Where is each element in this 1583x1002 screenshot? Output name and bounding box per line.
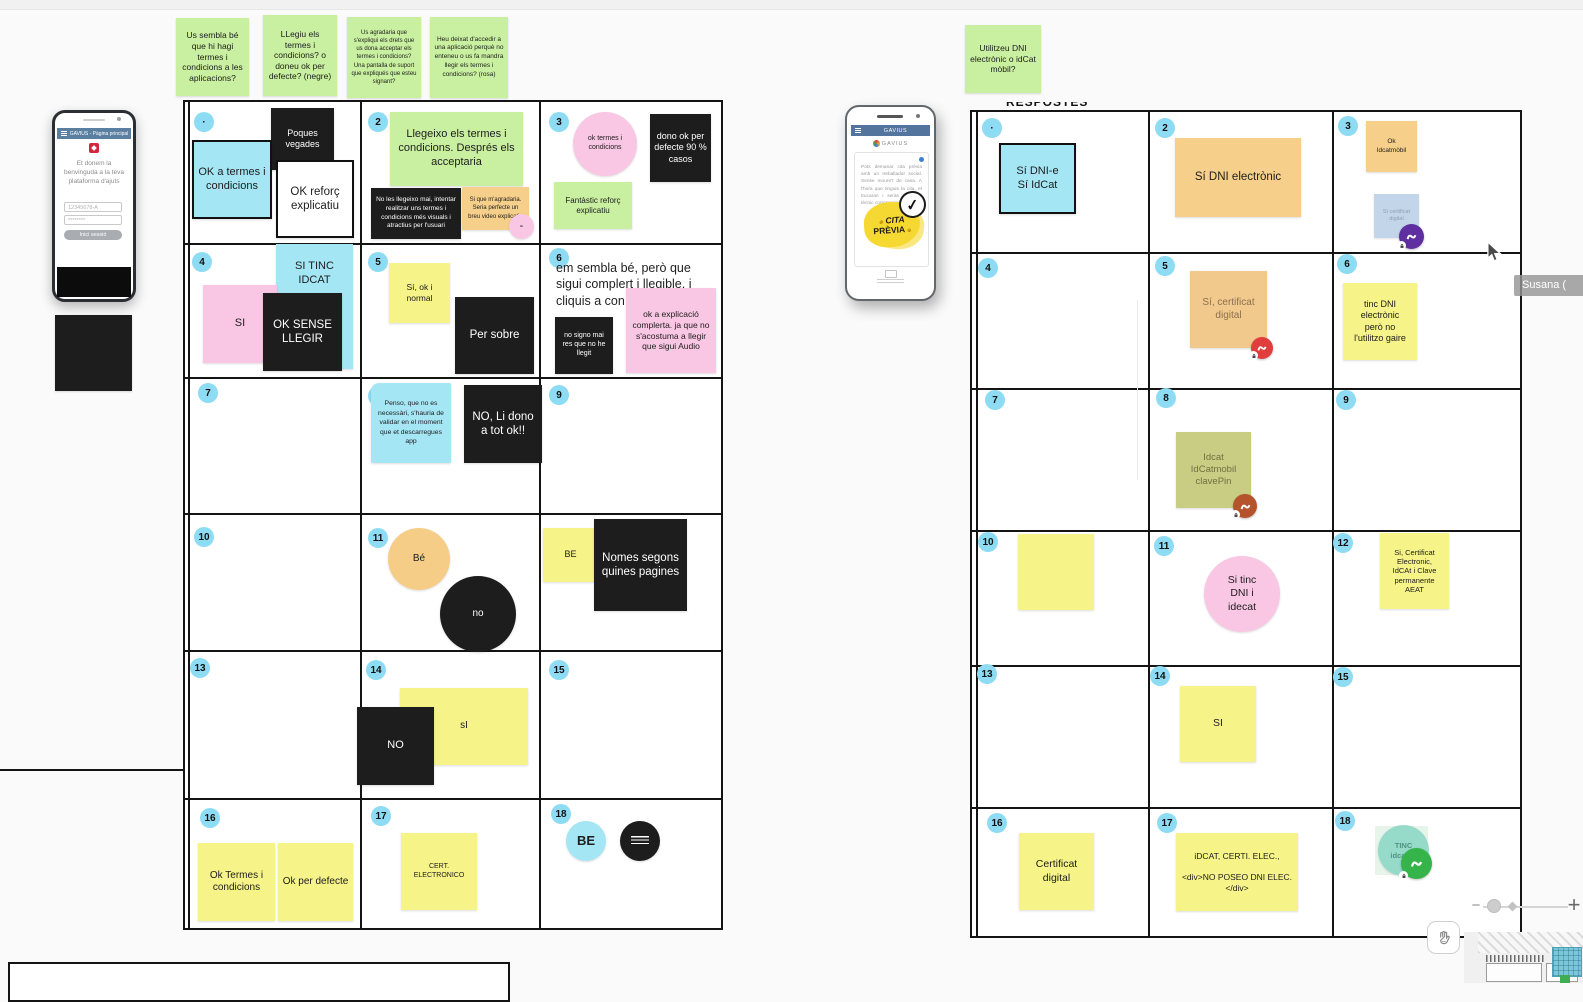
sticky-dot[interactable]: - xyxy=(509,214,534,239)
cell-badge-10[interactable]: 10 xyxy=(194,527,214,547)
avatar-doodle-icon xyxy=(1256,342,1268,354)
gavius-brand: GAVIUS xyxy=(847,140,934,147)
grid-row-line xyxy=(972,665,1520,667)
cell-badge-18[interactable]: 18 xyxy=(551,804,571,824)
minimap-frame-a xyxy=(1486,963,1542,982)
avatar-doodle-icon xyxy=(1409,856,1424,871)
minimap-dash-row xyxy=(1486,955,1544,962)
phone-bottom-band xyxy=(57,267,131,297)
hand-tool-button[interactable] xyxy=(1427,921,1460,954)
sticky-note[interactable]: SI xyxy=(1180,686,1256,762)
grid-row-line xyxy=(185,377,721,379)
sticky-circle[interactable]: BE xyxy=(566,821,606,861)
sticky-note[interactable]: OK reforç explicatiu xyxy=(276,160,354,238)
phone-speaker xyxy=(83,119,105,121)
grid-row-line xyxy=(972,388,1520,390)
sticky-circle[interactable]: no xyxy=(440,576,516,652)
canvas-top-edge xyxy=(0,0,1583,10)
sticky-note[interactable]: Sí, certificat digital xyxy=(1190,271,1267,348)
partial-frame-bottom-left[interactable] xyxy=(8,962,510,1002)
gavius-brand-text: GAVIUS xyxy=(882,141,908,147)
sticky-note[interactable]: Nomes segons quines pagines xyxy=(594,519,687,611)
footer-crest-icon xyxy=(885,270,897,278)
whiteboard-canvas[interactable]: { "palette":{"green":"#c9f0a0","cyan":"#… xyxy=(0,0,1583,983)
cell-badge-10[interactable]: 10 xyxy=(978,532,998,552)
welcome-text: Et donem la benvinguda a la teva platafo… xyxy=(62,159,126,186)
phone-login-header: GAVIUS - Pàgina principal xyxy=(57,128,131,139)
phone-login-header-title: GAVIUS - Pàgina principal xyxy=(67,131,131,137)
lock-icon xyxy=(1249,351,1258,360)
frame-respostes[interactable] xyxy=(970,110,1522,938)
cell-badge-1[interactable]: · xyxy=(982,118,1002,138)
lock-icon xyxy=(1231,510,1240,519)
city-logo xyxy=(89,143,99,153)
sticky-note[interactable]: no signo mai res que no he llegit xyxy=(555,317,613,374)
frame-left-inner-border xyxy=(188,102,190,928)
cell-badge-13[interactable]: 13 xyxy=(190,658,210,678)
cell-badge-7[interactable]: 7 xyxy=(985,390,1005,410)
cell-badge-2[interactable]: 2 xyxy=(1155,118,1175,138)
sticky-note[interactable]: Certificat digital xyxy=(1019,833,1094,910)
grid-row-line xyxy=(185,798,721,800)
hand-icon xyxy=(1435,929,1452,946)
cell-badge-11[interactable]: 11 xyxy=(368,528,388,548)
cell-badge-16[interactable]: 16 xyxy=(200,808,220,828)
cell-badge-5[interactable]: 5 xyxy=(1155,256,1175,276)
minimap-content-block xyxy=(1552,947,1582,977)
collaborator-avatar-red xyxy=(1251,337,1273,359)
cell-badge-17[interactable]: 17 xyxy=(1157,813,1177,833)
phone-camera-dot xyxy=(117,117,121,121)
cell-badge-14[interactable]: 14 xyxy=(366,660,386,680)
sticky-note[interactable]: iDCAT, CERTI. ELEC., <div>NO POSEO DNI E… xyxy=(1176,833,1298,911)
faint-guide-line xyxy=(1137,300,1138,480)
cell-badge-9[interactable]: 9 xyxy=(1336,390,1356,410)
collaborator-avatar-purple xyxy=(1399,224,1424,249)
sticky-note[interactable]: Fantàstic reforç explicatiu xyxy=(554,182,632,229)
sticky-note[interactable]: BE xyxy=(543,528,598,582)
cell-badge-4[interactable]: 4 xyxy=(192,252,212,272)
cell-badge-9[interactable]: 9 xyxy=(549,385,569,405)
sticky-note[interactable]: Sí DNI electrònic xyxy=(1175,138,1301,217)
frame-title-text: RESPOSTES xyxy=(1006,102,1116,109)
phone-camera-dot xyxy=(916,114,920,118)
cta-text-2: PRÈVIA xyxy=(873,224,905,236)
grid-row-line xyxy=(972,807,1520,809)
sticky-note[interactable]: Ok per defecte xyxy=(278,843,353,921)
password-input: ******** xyxy=(64,215,122,225)
cell-badge-16[interactable]: 16 xyxy=(987,813,1007,833)
sticky-note[interactable]: OK a termes i condicions xyxy=(192,140,272,219)
sticky-note[interactable]: dono ok per defecte 90 % casos xyxy=(650,114,711,182)
gear-icon: ⊕ xyxy=(907,227,912,233)
cell-badge-3[interactable]: 3 xyxy=(1338,116,1358,136)
sticky-note[interactable]: No les llegeixo mai, intentar realitzar … xyxy=(371,188,461,239)
question-note-4[interactable]: Heu deixat d'accedir a una aplicació per… xyxy=(430,17,508,98)
collaborator-cursor-icon xyxy=(1486,241,1502,268)
grid-col-line xyxy=(1332,112,1334,936)
cell-badge-13[interactable]: 13 xyxy=(977,664,997,684)
sticky-note[interactable]: NO xyxy=(357,707,434,785)
question-note-1[interactable]: Us sembla bé que hi hagi termes i condic… xyxy=(176,18,249,96)
grid-col-line xyxy=(1148,112,1150,936)
cell-badge-17[interactable]: 17 xyxy=(371,806,391,826)
sticky-note[interactable]: Llegeixo els termes i condicions. Despré… xyxy=(390,112,523,186)
login-button: Inici sessió xyxy=(64,230,122,240)
cell-badge-3[interactable]: 3 xyxy=(549,112,569,132)
zoom-slider-knob[interactable] xyxy=(1487,899,1501,913)
grid-col-line xyxy=(539,102,541,928)
sticky-note[interactable]: OK SENSE LLEGIR xyxy=(263,293,342,371)
grid-col-line xyxy=(360,102,362,928)
question-note-2[interactable]: LLegiu els termes i condicions? o doneu … xyxy=(263,15,337,96)
collaborator-name-tag: Susana ( xyxy=(1514,275,1583,296)
check-mark: ✓ xyxy=(905,195,920,215)
frame-edge-line-left xyxy=(0,769,183,771)
sticky-note[interactable]: Ok Idcatmòbil xyxy=(1366,121,1417,172)
grid-row-line xyxy=(185,243,721,245)
collaborator-avatar-green xyxy=(1401,848,1432,879)
sticky-circle[interactable]: Bé xyxy=(388,528,450,590)
scribble-lines-icon xyxy=(631,836,649,846)
phone-mockup-login[interactable]: GAVIUS - Pàgina principal Et donem la be… xyxy=(52,110,136,302)
gavius-logo-icon xyxy=(873,140,880,147)
cell-badge-14[interactable]: 14 xyxy=(1150,666,1170,686)
sticky-note[interactable]: Per sobre xyxy=(455,297,534,374)
cell-badge-15[interactable]: 15 xyxy=(549,660,569,680)
sticky-note[interactable]: Ok Termes i condicions xyxy=(198,843,275,921)
phone-speaker xyxy=(877,115,903,118)
lock-icon xyxy=(1399,871,1408,880)
avatar-doodle-icon xyxy=(1405,230,1418,243)
scribble-circle[interactable] xyxy=(620,821,660,861)
cell-badge-12[interactable]: 12 xyxy=(1333,533,1353,553)
sticky-note-blank[interactable] xyxy=(1018,534,1094,610)
avatar-doodle-icon xyxy=(1239,500,1252,513)
cita-card: Pots demanar cita prèvia amb un treballa… xyxy=(854,152,929,267)
cell-badge-7[interactable]: 7 xyxy=(198,383,218,403)
sticky-note[interactable]: Sí, ok i normal xyxy=(389,263,450,323)
cell-badge-1[interactable]: · xyxy=(194,112,214,132)
grid-row-line xyxy=(185,513,721,515)
grid-row-line xyxy=(972,252,1520,254)
zoom-in-button[interactable]: + xyxy=(1564,893,1583,917)
question-note-3[interactable]: Us agradaria que s'expliqui els drets qu… xyxy=(347,17,421,98)
black-rectangle-note[interactable] xyxy=(55,315,132,391)
sticky-note[interactable]: NO, Li dono a tot ok!! xyxy=(464,385,542,463)
sticky-note[interactable]: tinc DNI electrònic però no l'utilitzo g… xyxy=(1343,283,1417,360)
collaborator-avatar-brown xyxy=(1233,494,1257,518)
sticky-note[interactable]: Sí DNI-e Sí IdCat xyxy=(999,143,1076,214)
grid-row-line xyxy=(972,530,1520,532)
phone-cita-header: GAVIUS xyxy=(851,125,930,136)
cell-badge-6[interactable]: 6 xyxy=(1337,254,1357,274)
cell-badge-8[interactable]: 8 xyxy=(1156,388,1176,408)
info-icon xyxy=(919,157,924,162)
cell-badge-18[interactable]: 18 xyxy=(1335,811,1355,831)
footer-text-lines xyxy=(877,279,904,284)
sticky-note[interactable]: ok a explicació complerta. ja que no s'a… xyxy=(626,288,716,373)
cell-badge-2[interactable]: 2 xyxy=(368,112,388,132)
phone-mockup-cita-previa[interactable]: GAVIUS GAVIUS Pots demanar cita prèvia a… xyxy=(845,105,936,301)
grid-row-line xyxy=(185,650,721,652)
question-note-5[interactable]: Utilitzeu DNI electrònic o idCat mòbil? xyxy=(965,25,1041,93)
username-input: 12345678-A xyxy=(64,202,122,212)
cell-badge-5[interactable]: 5 xyxy=(368,252,388,272)
sticky-note[interactable]: Si, Certificat Electronic, IdCAt i Clave… xyxy=(1380,533,1449,609)
minimap-green-marker xyxy=(1560,975,1570,983)
sticky-note[interactable]: Penso, que no es necessàri, s'hauria de … xyxy=(371,383,451,463)
lock-icon xyxy=(1397,241,1406,250)
frame-right-inner-border xyxy=(976,112,978,936)
frame-title-clipped: RESPOSTES xyxy=(1006,102,1116,109)
sticky-circle[interactable]: Si tinc DNI i idecat xyxy=(1204,556,1280,632)
cell-badge-15[interactable]: 15 xyxy=(1333,667,1353,687)
zoom-out-button[interactable]: − xyxy=(1468,898,1484,914)
minimap[interactable] xyxy=(1464,932,1583,983)
cell-badge-11[interactable]: 11 xyxy=(1154,536,1174,556)
cell-badge-4[interactable]: 4 xyxy=(978,258,998,278)
sticky-note[interactable]: CERT. ELECTRONICO xyxy=(401,833,477,910)
phone-cita-header-title: GAVIUS xyxy=(861,128,930,134)
sticky-note[interactable]: ok termes i condicions xyxy=(573,112,637,176)
